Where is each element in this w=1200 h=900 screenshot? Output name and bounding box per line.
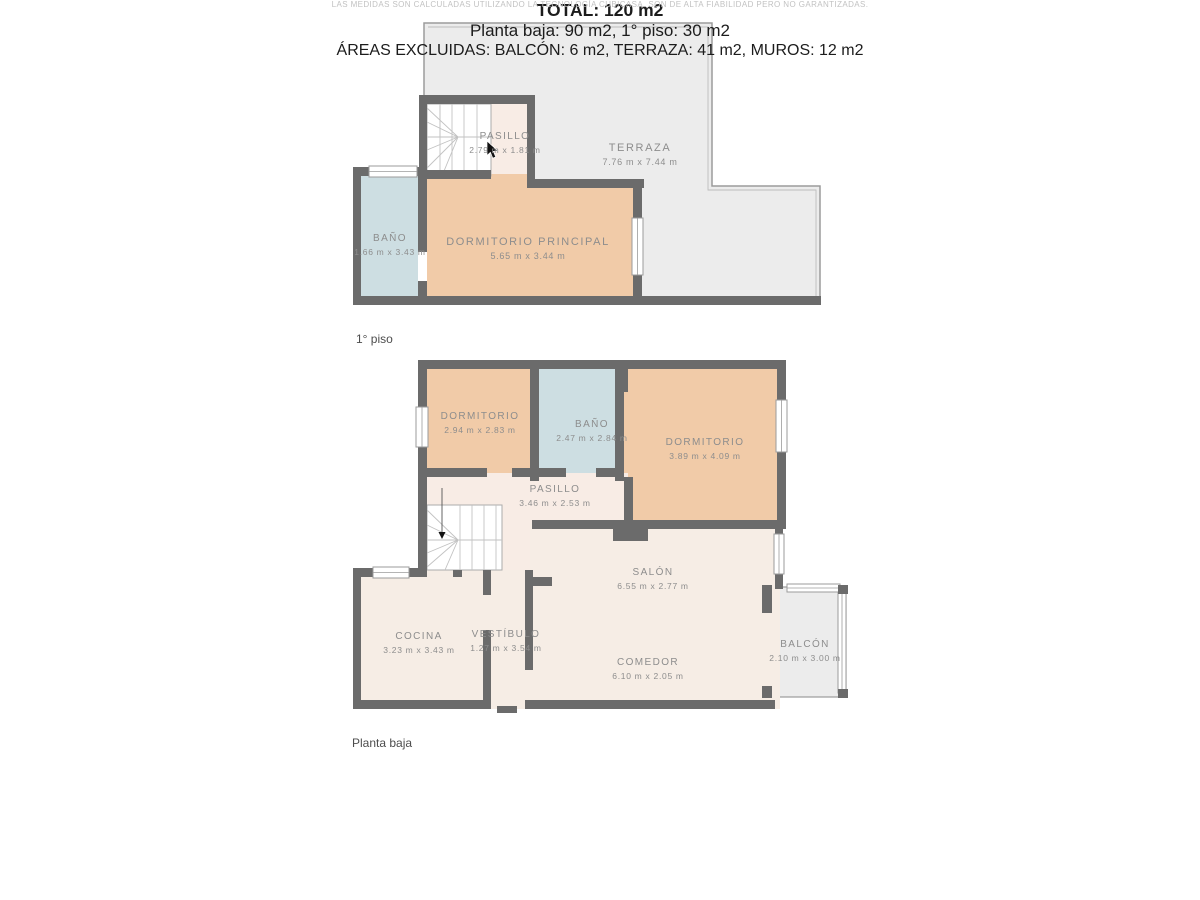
room-label-dormitorio-2: DORMITORIO 3.89 m x 4.09 m [666,437,745,461]
room-dims: 2.10 m x 3.00 m [769,653,840,663]
room-dims: 6.10 m x 2.05 m [612,671,683,681]
room-dims: 7.76 m x 7.44 m [602,157,677,167]
room-dims: 3.46 m x 2.53 m [519,498,590,508]
room-name: PASILLO [469,131,540,142]
room-label-balcon: BALCÓN 2.10 m x 3.00 m [769,639,840,663]
room-dims: 1.27 m x 3.54 m [470,643,541,653]
room-name: BALCÓN [769,639,840,650]
room-name: BAÑO [556,419,627,430]
area-summary: TOTAL: 120 m2 Planta baja: 90 m2, 1° pis… [0,0,1200,60]
room-label-vestibulo: VESTÍBULO 1.27 m x 3.54 m [470,629,541,653]
room-name: DORMITORIO [441,411,520,422]
room-name: DORMITORIO [666,437,745,448]
room-label-pasillo-f1: PASILLO 2.79 m x 1.81 m [469,131,540,155]
room-dims: 3.23 m x 3.43 m [383,645,454,655]
room-name: COMEDOR [612,657,683,668]
room-label-terraza: TERRAZA 7.76 m x 7.44 m [602,143,677,167]
room-name: VESTÍBULO [470,629,541,640]
floor-caption-piso1: 1° piso [356,332,393,346]
room-name: SALÓN [617,567,688,578]
room-label-comedor: COMEDOR 6.10 m x 2.05 m [612,657,683,681]
room-dims: 6.55 m x 2.77 m [617,581,688,591]
room-name: BAÑO [354,233,425,244]
summary-excluded: ÁREAS EXCLUIDAS: BALCÓN: 6 m2, TERRAZA: … [0,41,1200,60]
room-label-pasillo-f2: PASILLO 3.46 m x 2.53 m [519,484,590,508]
room-label-bano-f2: BAÑO 2.47 m x 2.84 m [556,419,627,443]
measurement-disclaimer: LAS MEDIDAS SON CALCULADAS UTILIZANDO LA… [0,0,1200,9]
room-name: TERRAZA [602,143,677,154]
room-label-dormitorio-1: DORMITORIO 2.94 m x 2.83 m [441,411,520,435]
room-label-cocina: COCINA 3.23 m x 3.43 m [383,631,454,655]
room-label-dormitorio-principal: DORMITORIO PRINCIPAL 5.65 m x 3.44 m [446,237,610,261]
summary-areas: Planta baja: 90 m2, 1° piso: 30 m2 [0,21,1200,40]
room-dims: 2.94 m x 2.83 m [441,425,520,435]
room-dims: 1.66 m x 3.43 m [354,247,425,257]
room-dims: 2.47 m x 2.84 m [556,433,627,443]
room-label-bano-f1: BAÑO 1.66 m x 3.43 m [354,233,425,257]
room-dims: 2.79 m x 1.81 m [469,145,540,155]
room-name: COCINA [383,631,454,642]
floor-caption-planta-baja: Planta baja [352,736,412,750]
room-name: DORMITORIO PRINCIPAL [446,237,610,248]
floorplan-page: PASILLO 2.79 m x 1.81 m TERRAZA 7.76 m x… [0,0,1200,900]
room-label-salon: SALÓN 6.55 m x 2.77 m [617,567,688,591]
room-dims: 5.65 m x 3.44 m [446,251,610,261]
room-dims: 3.89 m x 4.09 m [666,451,745,461]
floor-plan-2-svg [350,355,850,720]
room-name: PASILLO [519,484,590,495]
floor-plan-1-svg [350,18,828,310]
